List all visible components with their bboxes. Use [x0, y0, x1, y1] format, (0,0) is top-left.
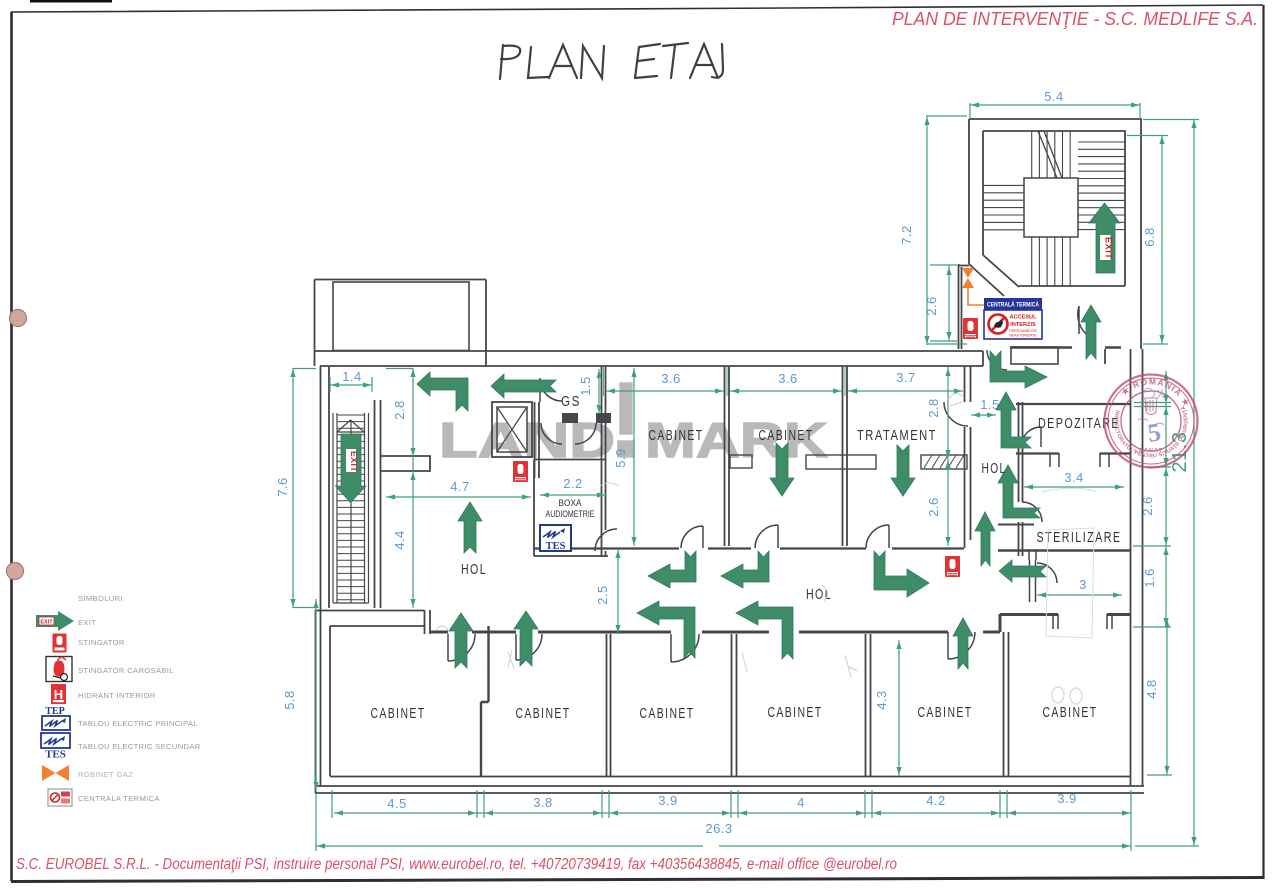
svg-text:BOXA: BOXA: [559, 498, 582, 508]
svg-text:EXIT: EXIT: [40, 620, 53, 626]
svg-text:ACCESUL: ACCESUL: [1009, 315, 1037, 321]
svg-text:TABLOU ELECTRIC SECUNDAR: TABLOU ELECTRIC SECUNDAR: [78, 742, 201, 751]
svg-text:2.8: 2.8: [392, 400, 407, 420]
svg-text:5.9: 5.9: [613, 448, 628, 468]
svg-text:2.2: 2.2: [563, 476, 583, 491]
svg-text:4.7: 4.7: [450, 479, 470, 494]
svg-text:TES: TES: [546, 541, 566, 552]
svg-text:S.C. EUROBEL S.R.L. - Document: S.C. EUROBEL S.R.L. - Documentaţii PSI, …: [16, 856, 897, 873]
svg-text:CABINET: CABINET: [768, 704, 823, 721]
svg-text:GS: GS: [561, 393, 581, 410]
svg-text:3.4: 3.4: [1064, 470, 1084, 485]
svg-text:5.8: 5.8: [282, 690, 297, 710]
svg-text:STINGATOR CAROSABIL: STINGATOR CAROSABIL: [78, 666, 174, 675]
svg-text:2.5: 2.5: [595, 585, 610, 605]
svg-text:AUDIOMETRIE: AUDIOMETRIE: [546, 509, 595, 519]
svg-text:3.6: 3.6: [661, 371, 681, 386]
svg-text:EXIT: EXIT: [349, 451, 359, 473]
svg-text:4.3: 4.3: [874, 690, 889, 710]
svg-text:CABINET: CABINET: [759, 427, 814, 444]
svg-text:ROBINET GAZ: ROBINET GAZ: [78, 770, 133, 779]
svg-text:1.4: 1.4: [342, 369, 362, 384]
svg-text:CABINET: CABINET: [918, 704, 973, 721]
svg-text:SIMBOLURI: SIMBOLURI: [78, 594, 123, 603]
svg-text:EXIT: EXIT: [78, 618, 96, 627]
svg-text:CENTRALĂ TERMICĂ: CENTRALĂ TERMICĂ: [987, 302, 1039, 309]
svg-text:1.6: 1.6: [1142, 568, 1157, 588]
svg-text:4.5: 4.5: [387, 796, 407, 811]
svg-text:NEAUTORIZATE: NEAUTORIZATE: [1009, 334, 1037, 338]
svg-text:TRATAMENT: TRATAMENT: [857, 427, 937, 444]
svg-text:7.2: 7.2: [899, 225, 914, 245]
svg-text:26.3: 26.3: [705, 821, 732, 836]
svg-text:4.4: 4.4: [392, 530, 407, 550]
svg-text:TABLOU ELECTRIC PRINCIPAL: TABLOU ELECTRIC PRINCIPAL: [78, 719, 198, 728]
svg-text:CABINET: CABINET: [516, 705, 571, 722]
svg-text:4.2: 4.2: [926, 793, 946, 808]
svg-text:3: 3: [1079, 577, 1087, 592]
svg-text:3.9: 3.9: [658, 793, 678, 808]
svg-text:CABINET: CABINET: [371, 705, 426, 722]
svg-text:CENTRALA TERMICA: CENTRALA TERMICA: [78, 794, 160, 803]
svg-text:PERSOANELOR: PERSOANELOR: [1009, 329, 1037, 333]
svg-text:3.6: 3.6: [778, 371, 798, 386]
svg-text:HIDRANT INTERIOR: HIDRANT INTERIOR: [78, 691, 156, 700]
svg-text:4.8: 4.8: [1144, 679, 1159, 699]
svg-text:4: 4: [797, 795, 805, 810]
svg-text:3.7: 3.7: [896, 370, 916, 385]
svg-text:3.8: 3.8: [533, 795, 553, 810]
svg-text:CABINET: CABINET: [1043, 704, 1098, 721]
svg-text:2.8: 2.8: [926, 398, 941, 418]
svg-text:CABINET: CABINET: [649, 427, 704, 444]
svg-text:CABINET: CABINET: [640, 705, 695, 722]
svg-text:2.6: 2.6: [924, 296, 939, 316]
svg-text:2.6: 2.6: [926, 497, 941, 517]
svg-text:STINGATOR: STINGATOR: [78, 638, 125, 647]
svg-text:HOL: HOL: [461, 561, 487, 578]
svg-text:7.6: 7.6: [275, 477, 290, 497]
svg-text:TES: TES: [45, 749, 66, 761]
svg-text:5.4: 5.4: [1044, 89, 1064, 104]
svg-text:STERILIZARE: STERILIZARE: [1037, 529, 1122, 546]
svg-text:H: H: [54, 687, 63, 702]
svg-text:3.9: 3.9: [1057, 791, 1077, 806]
svg-text:2.6: 2.6: [1140, 496, 1155, 516]
svg-text:6.8: 6.8: [1142, 227, 1157, 247]
svg-text:HOL: HOL: [806, 586, 832, 603]
svg-text:PLAN DE INTERVENŢIE - S.C. MED: PLAN DE INTERVENŢIE - S.C. MEDLIFE S.A.: [892, 9, 1258, 29]
svg-text:• BANAT •: • BANAT •: [1134, 448, 1169, 454]
svg-text:HOL: HOL: [982, 460, 1007, 477]
svg-text:INTERZIS: INTERZIS: [1010, 322, 1036, 328]
svg-text:EXIT: EXIT: [1104, 237, 1114, 259]
